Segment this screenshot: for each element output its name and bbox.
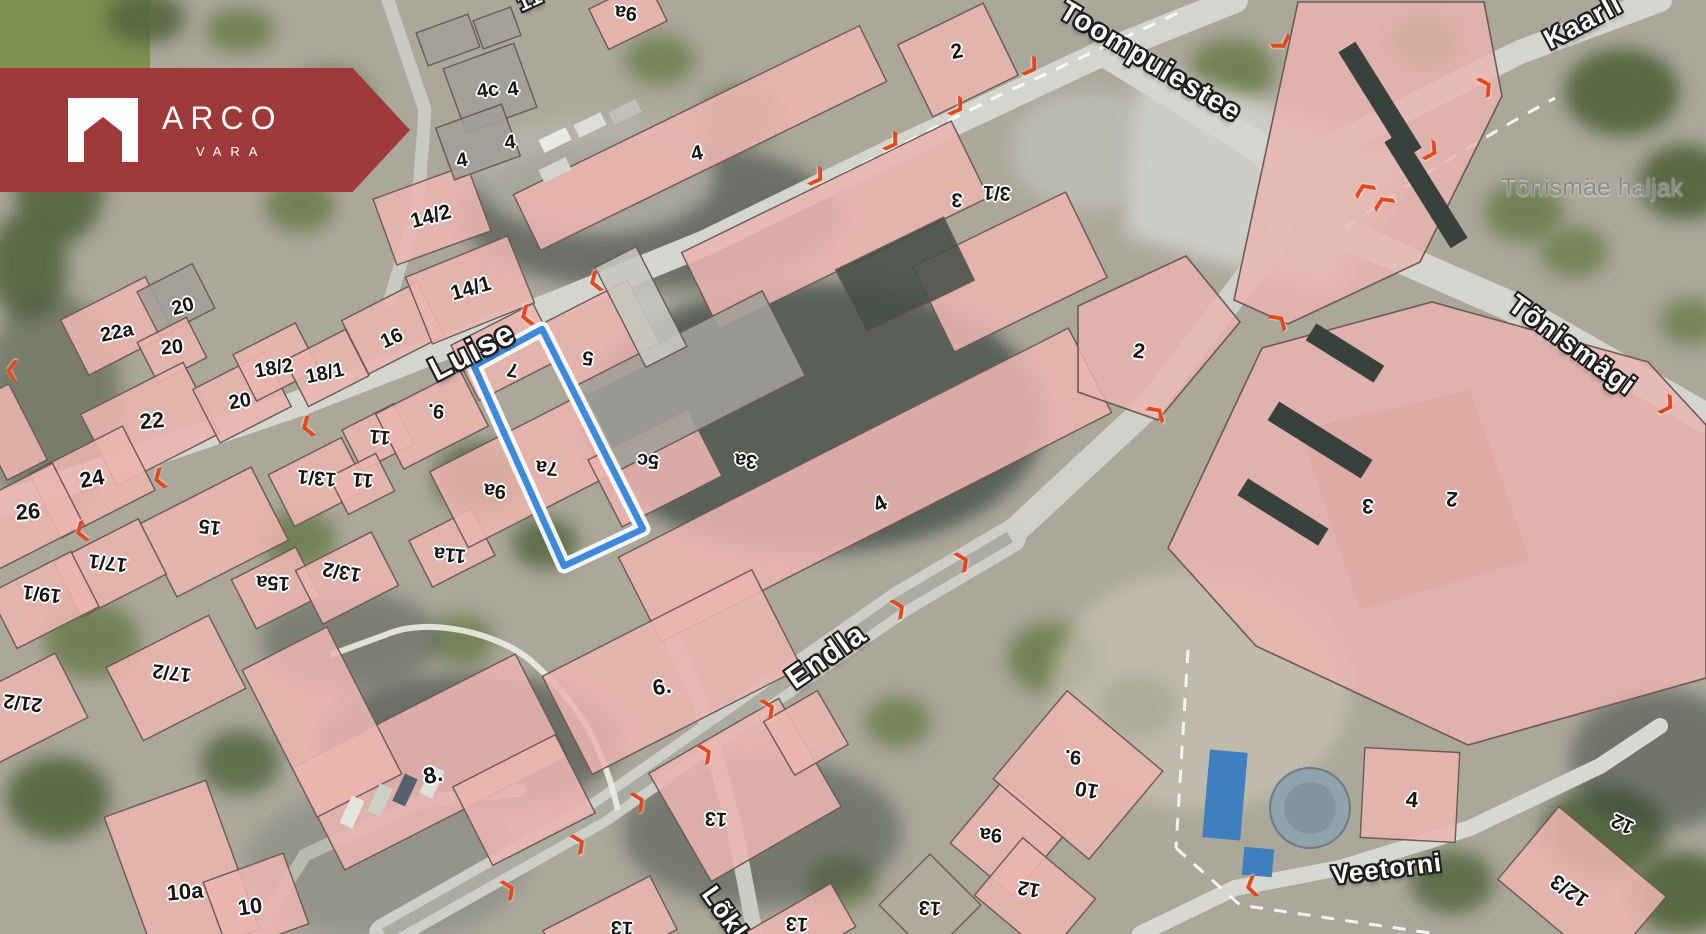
building-number: 13	[610, 915, 633, 934]
building-number: 11a	[433, 541, 467, 567]
direction-arrow-icon: ❯	[1654, 389, 1681, 419]
building-number: 13	[704, 806, 727, 830]
building-number: 18/1	[304, 359, 347, 390]
building-number: 9a	[614, 0, 638, 24]
building-number: 7a	[535, 455, 559, 480]
building-number: 13/1	[297, 464, 338, 490]
street-label-t-nism-gi: Tõnismägi	[1502, 288, 1641, 401]
building-number: 13/2	[321, 556, 363, 585]
direction-arrow-icon: ❯	[565, 827, 591, 856]
building-number: 22	[138, 407, 165, 435]
direction-arrow-icon: ❯	[944, 91, 972, 121]
direction-arrow-icon: ❯	[2, 359, 22, 384]
building-number: 9a	[979, 822, 1002, 846]
building-number: 4	[1405, 787, 1419, 814]
direction-arrow-icon: ❯	[1241, 874, 1263, 901]
building-number: 3/1	[983, 180, 1012, 204]
building-number: 8.	[421, 760, 445, 790]
building-number: 5c	[636, 448, 660, 473]
building-number: 22a	[98, 318, 135, 347]
direction-arrow-icon: ❯	[692, 737, 718, 766]
direction-arrow-icon: ❯	[879, 126, 907, 156]
building-number: 18/2	[253, 354, 295, 383]
building-number: 10	[1073, 775, 1100, 803]
direction-arrow-icon: ❯	[515, 303, 539, 331]
building-number: 3	[1362, 493, 1375, 518]
building-number: 9a	[483, 478, 507, 503]
building-number: 7	[506, 357, 521, 382]
direction-arrow-icon: ❯	[1472, 70, 1499, 99]
building-number: 13	[785, 911, 808, 934]
direction-arrow-icon: ❯	[949, 545, 975, 574]
area-label: Tõnismäe haljak	[1501, 174, 1683, 203]
direction-arrow-icon: ❯	[804, 161, 832, 191]
building-number: 3a	[734, 448, 758, 473]
building-number: 10	[236, 892, 264, 921]
building-number: 13	[918, 895, 941, 919]
building-number: 9.	[1064, 744, 1083, 768]
building-number: 24	[78, 464, 107, 494]
direction-arrow-icon: ❯	[584, 269, 608, 297]
building-number: 9.	[426, 398, 445, 423]
arco-vara-logo: ARCO VARA	[0, 68, 410, 192]
direction-arrow-icon: ❯	[885, 592, 911, 621]
building-number: 12/3	[1546, 868, 1593, 911]
street-label-endla: Endla	[779, 616, 873, 697]
street-label-l-kke: Lõkke	[695, 880, 766, 934]
street-label-11: 11	[513, 0, 547, 17]
direction-arrow-icon: ❯	[1263, 305, 1293, 334]
building-number: 5	[581, 345, 595, 369]
building-number: 17/2	[151, 658, 192, 686]
building-number: 26	[15, 498, 42, 526]
building-number: 20	[160, 336, 184, 361]
building-number: 6.	[651, 673, 674, 702]
building-number: 20	[227, 389, 253, 416]
building-number: 4	[503, 131, 516, 155]
street-label-toompuiestee: Toompuiestee	[1053, 0, 1247, 129]
building-number: 17/1	[87, 548, 128, 576]
direction-arrow-icon: ❯	[1419, 135, 1446, 164]
building-number: 12	[1608, 808, 1638, 838]
map-canvas[interactable]: ToompuiesteeKaarliLuiseEndlaTõnismägiVee…	[0, 0, 1706, 934]
building-number: 15a	[256, 570, 291, 595]
building-number: 12	[1016, 875, 1042, 902]
direction-arrow-icon: ❯	[755, 692, 781, 721]
building-number: 2	[1132, 339, 1147, 364]
building-number: 4	[455, 149, 470, 174]
direction-arrow-icon: ❯	[1268, 28, 1298, 56]
direction-arrow-icon: ❯	[70, 519, 94, 547]
direction-arrow-icon: ❯	[296, 414, 320, 442]
building-number: 15	[198, 513, 223, 539]
logo-sub-text: VARA	[196, 144, 266, 159]
building-number: 4	[506, 78, 520, 102]
building-number: 16	[377, 324, 407, 354]
arco-vara-house-icon	[68, 98, 138, 162]
building-number: 4	[868, 490, 891, 519]
building-number: 4c	[475, 78, 500, 104]
street-label-veetorni: Veetorni	[1330, 847, 1444, 891]
building-number: 11	[368, 424, 391, 449]
building-number: 14/1	[448, 272, 494, 306]
building-number: 14/2	[408, 200, 454, 234]
direction-arrow-icon: ❯	[1141, 397, 1171, 426]
building-number: 3	[951, 187, 963, 211]
direction-arrow-icon: ❯	[625, 785, 651, 814]
building-number: 10a	[166, 877, 205, 906]
building-number: 11	[351, 467, 374, 492]
building-number: 4	[689, 141, 705, 167]
street-label-kaarli: Kaarli	[1538, 0, 1627, 56]
building-number: 2	[949, 39, 965, 65]
direction-arrow-icon: ❯	[1018, 51, 1046, 81]
building-number: 2	[1446, 486, 1459, 511]
building-number: 20	[169, 293, 196, 321]
direction-arrow-icon: ❯	[495, 873, 521, 902]
building-number: 19/1	[21, 579, 62, 607]
direction-arrow-icon: ❯	[148, 466, 172, 494]
logo-brand-text: ARCO	[162, 100, 282, 137]
building-number: 21/2	[2, 688, 43, 716]
